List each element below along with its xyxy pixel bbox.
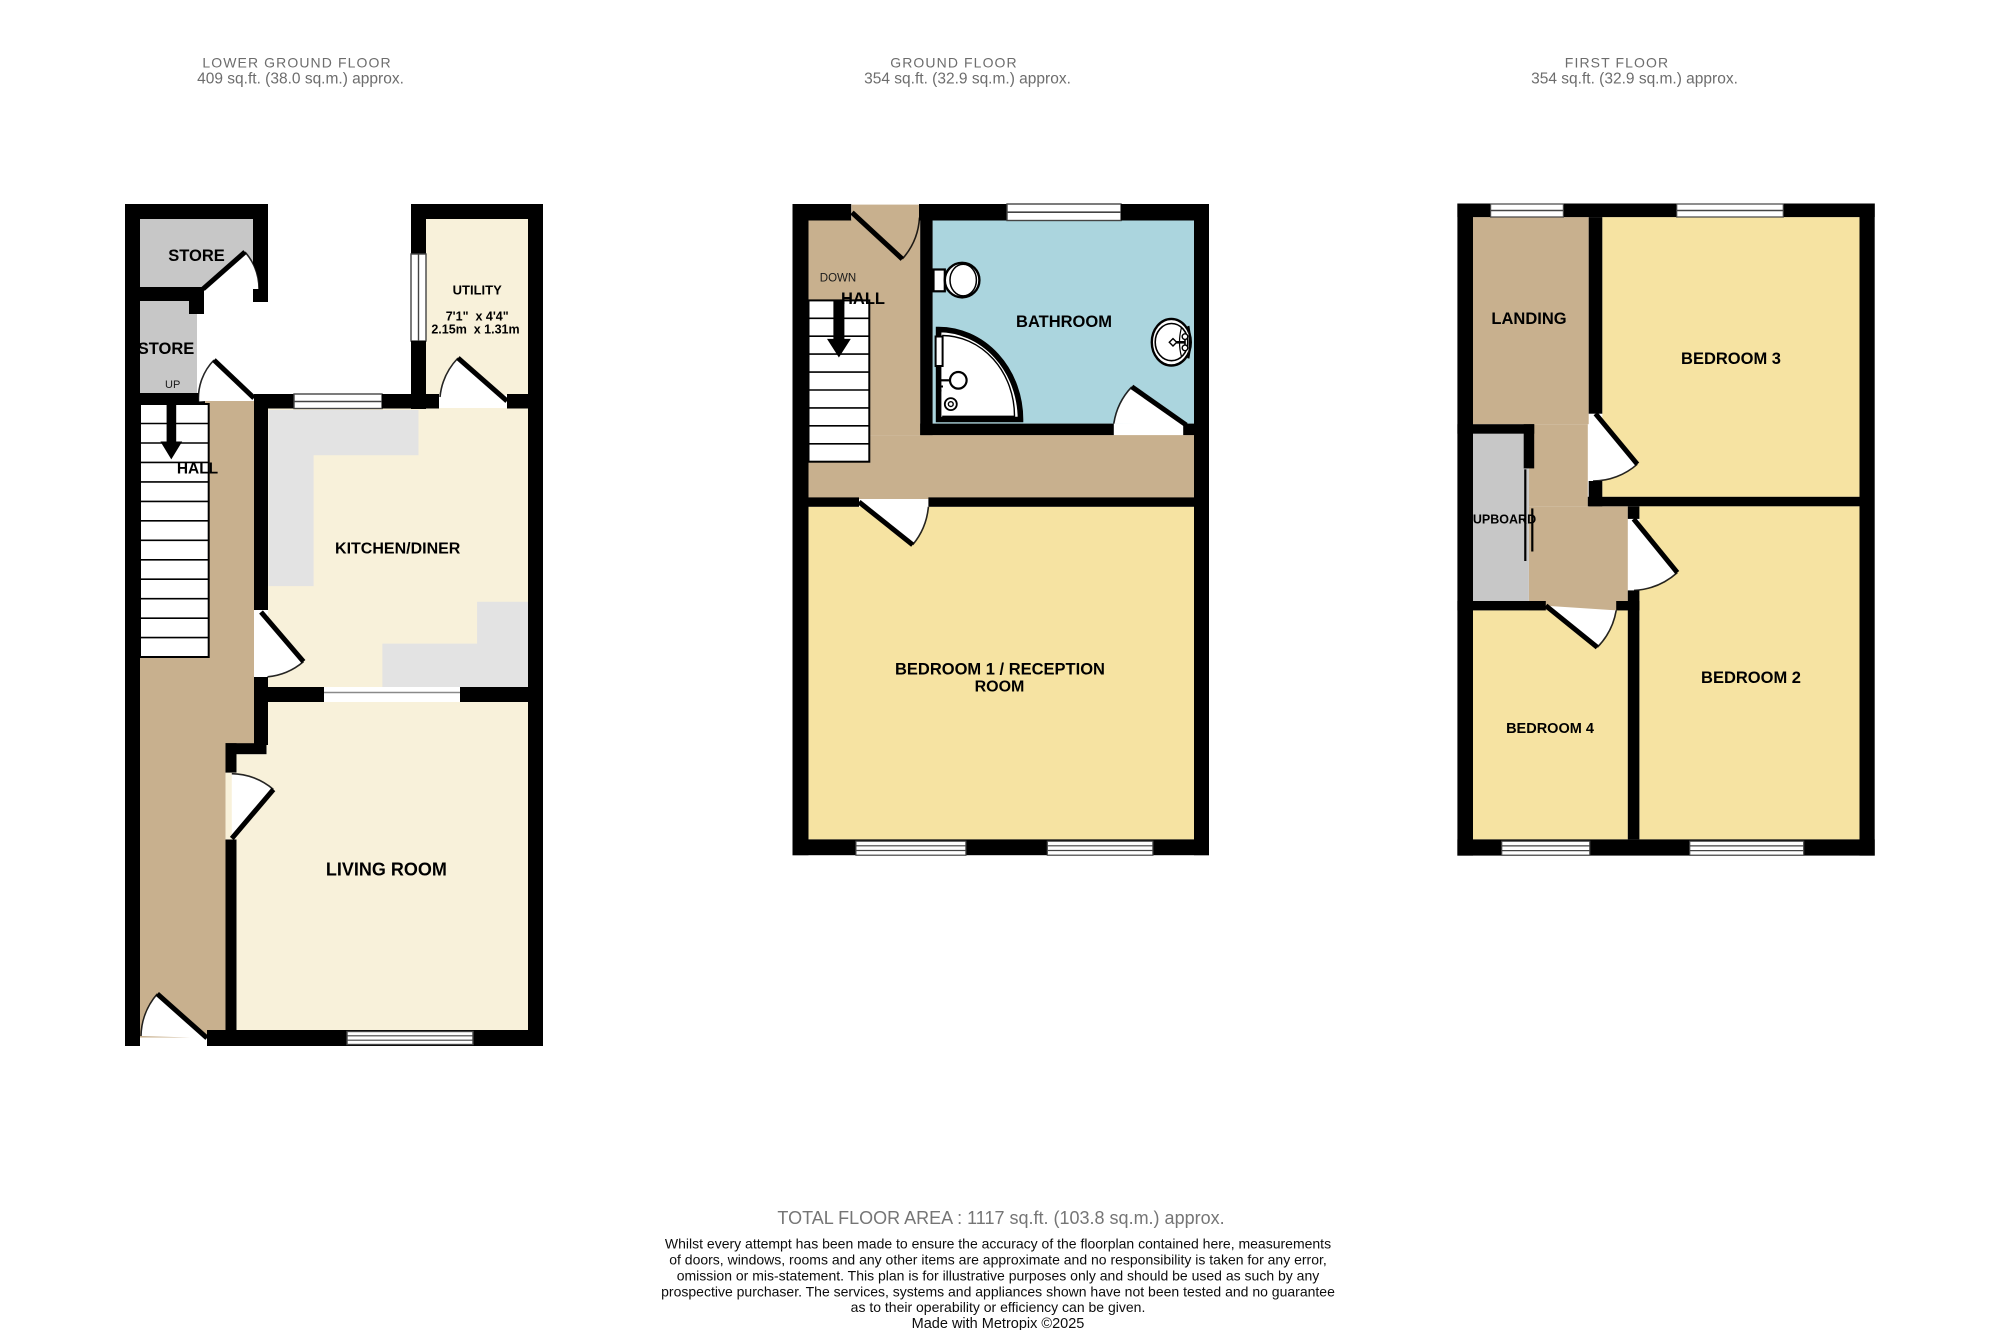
svg-text:LANDING: LANDING: [1491, 310, 1566, 328]
svg-text:STORE: STORE: [168, 247, 225, 265]
svg-text:KITCHEN/DINER: KITCHEN/DINER: [335, 541, 461, 558]
svg-text:BEDROOM 2: BEDROOM 2: [1701, 669, 1801, 687]
svg-text:354 sq.ft. (32.9 sq.m.) approx: 354 sq.ft. (32.9 sq.m.) approx.: [1531, 71, 1738, 88]
svg-text:omission or mis-statement. Thi: omission or mis-statement. This plan is …: [677, 1268, 1320, 1284]
svg-text:Made with Metropix ©2025: Made with Metropix ©2025: [912, 1316, 1085, 1330]
svg-text:HALL: HALL: [841, 290, 885, 308]
svg-text:Whilst every attempt has been: Whilst every attempt has been made to en…: [665, 1236, 1331, 1252]
svg-text:UP: UP: [165, 379, 180, 391]
svg-text:ROOM: ROOM: [975, 679, 1025, 696]
svg-text:prospective purchaser. The ser: prospective purchaser. The services, sys…: [661, 1284, 1335, 1300]
svg-text:STORE: STORE: [138, 340, 195, 358]
svg-text:BEDROOM 4: BEDROOM 4: [1506, 721, 1594, 737]
svg-text:BEDROOM 1 / RECEPTION: BEDROOM 1 / RECEPTION: [895, 661, 1105, 679]
svg-text:of doors, windows, rooms and a: of doors, windows, rooms and any other i…: [669, 1252, 1327, 1268]
svg-text:BATHROOM: BATHROOM: [1016, 313, 1112, 331]
svg-text:GROUND FLOOR: GROUND FLOOR: [890, 55, 1018, 71]
svg-text:CUPBOARD: CUPBOARD: [1464, 513, 1536, 527]
svg-text:HALL: HALL: [177, 461, 218, 478]
svg-text:TOTAL FLOOR AREA : 1117 sq.ft.: TOTAL FLOOR AREA : 1117 sq.ft. (103.8 sq…: [777, 1208, 1224, 1228]
svg-text:as to their operability or eff: as to their operability or efficiency ca…: [851, 1299, 1146, 1315]
svg-text:LIVING ROOM: LIVING ROOM: [326, 860, 447, 880]
svg-text:FIRST FLOOR: FIRST FLOOR: [1565, 55, 1669, 71]
svg-text:409 sq.ft. (38.0 sq.m.) approx: 409 sq.ft. (38.0 sq.m.) approx.: [197, 71, 404, 88]
svg-text:2.15m x 1.31m: 2.15m x 1.31m: [431, 322, 519, 336]
svg-text:BEDROOM 3: BEDROOM 3: [1681, 350, 1781, 368]
svg-text:354 sq.ft. (32.9 sq.m.) approx: 354 sq.ft. (32.9 sq.m.) approx.: [864, 71, 1071, 88]
svg-text:DOWN: DOWN: [820, 273, 856, 285]
svg-text:LOWER GROUND FLOOR: LOWER GROUND FLOOR: [202, 55, 391, 71]
svg-text:UTILITY: UTILITY: [453, 283, 502, 298]
